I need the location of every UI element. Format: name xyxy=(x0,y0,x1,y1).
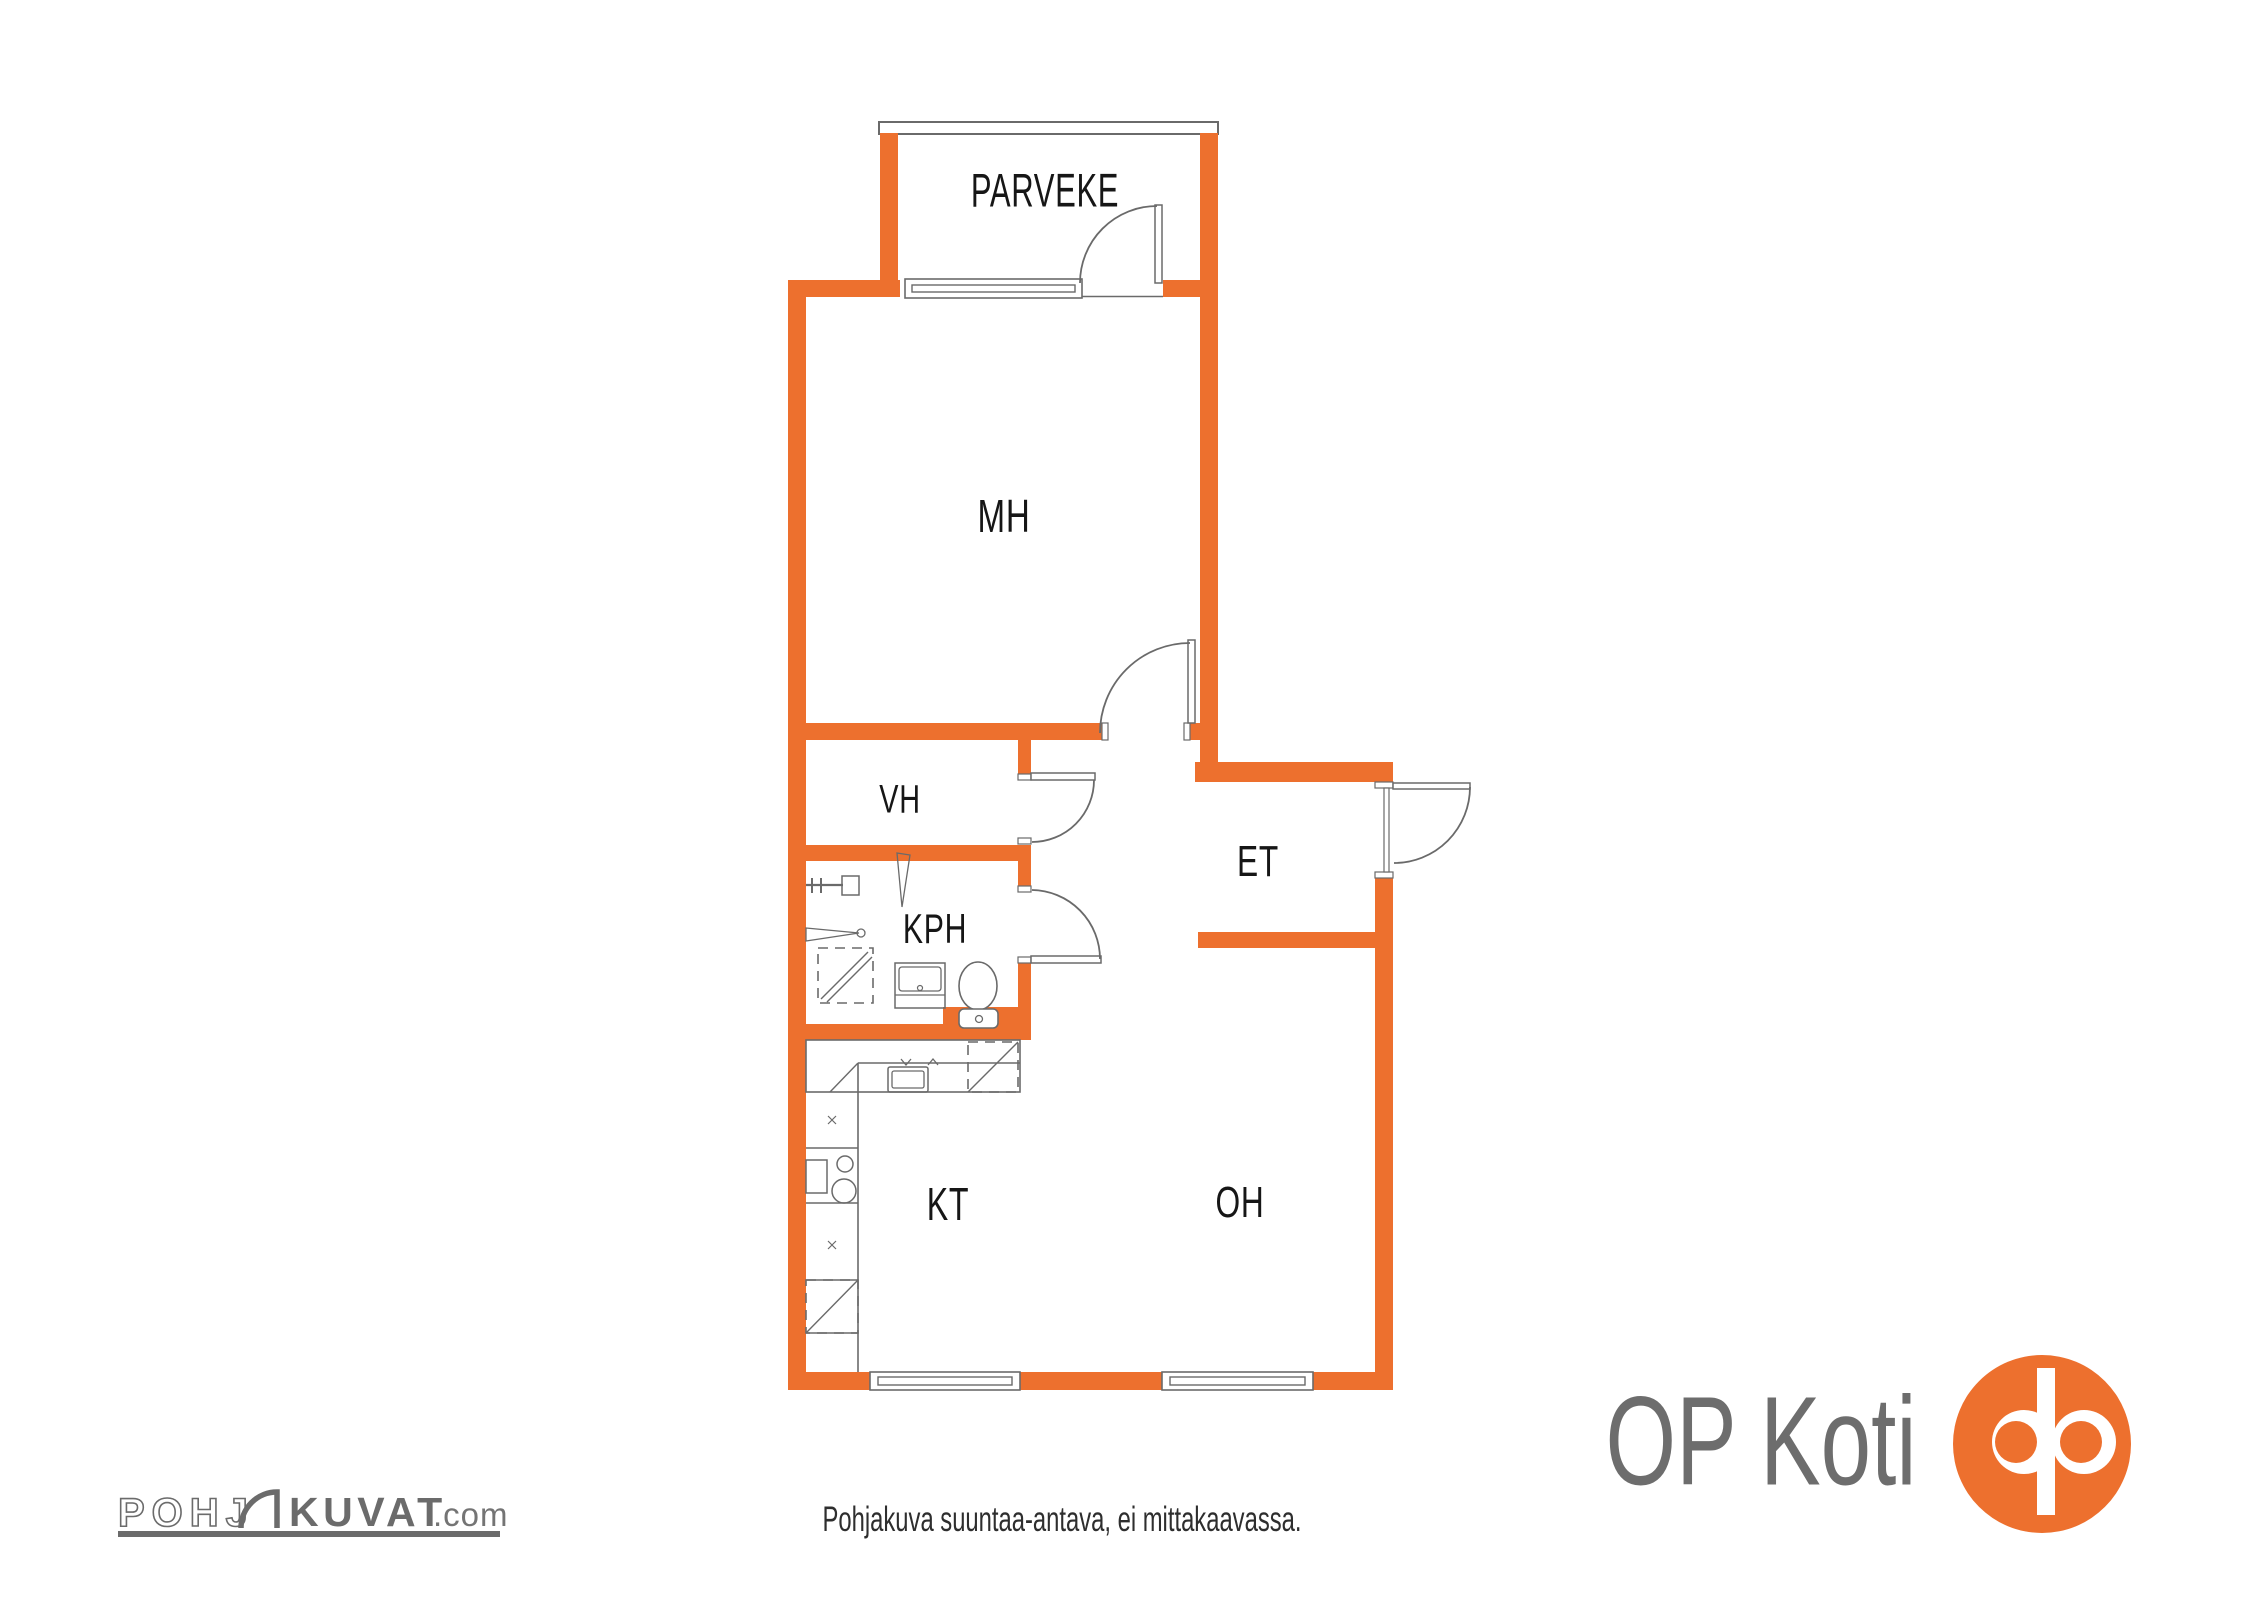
oh-window xyxy=(1162,1372,1313,1390)
pohjakuvat-logo-prefix: POHJ xyxy=(118,1491,255,1535)
wall-right-upper xyxy=(1200,133,1218,782)
wall-right-lower xyxy=(1375,878,1393,1390)
front-door-closed-line xyxy=(1384,788,1389,872)
vh-door-arc xyxy=(1032,780,1094,842)
pohjakuvat-logo: POHJ KUVAT .com xyxy=(110,1478,540,1548)
kph-door-leaf xyxy=(1031,956,1101,963)
wall-et-top xyxy=(1195,762,1393,782)
walls xyxy=(788,133,1393,1390)
room-label-kt: KT xyxy=(927,1177,970,1231)
wall-mh-bottom-stub xyxy=(1190,723,1218,740)
front-door-leaf xyxy=(1393,783,1470,789)
pohjakuvat-logo-main: KUVAT xyxy=(289,1489,447,1535)
stove-icon xyxy=(806,1160,827,1193)
front-door-arc xyxy=(1394,787,1470,863)
drain-wedge-icon xyxy=(897,853,910,907)
mh-door-arc xyxy=(1100,643,1190,733)
room-label-vh: VH xyxy=(879,778,920,823)
room-label-kph: KPH xyxy=(903,905,967,953)
shower-icon xyxy=(818,948,873,1003)
kph-door-arc xyxy=(1032,890,1100,959)
kitchen-fixtures xyxy=(806,1040,1020,1372)
balcony-door-leaf xyxy=(1155,205,1162,283)
op-logo-icon xyxy=(1948,1350,2138,1540)
kt-window xyxy=(870,1372,1020,1390)
vh-door-leaf xyxy=(1031,773,1095,780)
balcony-door-arc xyxy=(1080,206,1157,283)
wall-left xyxy=(788,280,806,1390)
mh-door-leaf xyxy=(1188,640,1195,723)
room-label-et: ET xyxy=(1237,837,1279,887)
wall-vh-right xyxy=(1018,737,1031,774)
floorplan-drawing xyxy=(0,0,2262,1600)
pohjakuvat-logo-suffix: .com xyxy=(433,1496,509,1533)
toilet-icon xyxy=(959,962,997,1010)
drain-wedge-icon xyxy=(806,928,859,941)
room-label-oh: OH xyxy=(1216,1178,1265,1228)
pohjakuvat-underline xyxy=(118,1531,500,1537)
wall-mh-bottom xyxy=(788,723,1102,740)
wall-balcony-left xyxy=(880,133,898,282)
wall-kph-right-upper xyxy=(1018,861,1031,886)
disclaimer-text: Pohjakuva suuntaa-antava, ei mittakaavas… xyxy=(823,1500,1302,1540)
room-label-parveke: PARVEKE xyxy=(971,163,1119,218)
wall-et-oh-divider xyxy=(1198,932,1377,948)
op-koti-text: OP Koti xyxy=(1606,1369,1917,1514)
mh-window xyxy=(905,279,1082,298)
balcony-railing xyxy=(879,122,1218,134)
wall-mh-top-right xyxy=(1163,280,1200,297)
floorplan-page: PARVEKE MH VH KPH ET KT OH Pohjakuva suu… xyxy=(0,0,2262,1600)
room-label-mh: MH xyxy=(978,489,1031,543)
wall-vh-kph-divider xyxy=(806,845,1031,861)
